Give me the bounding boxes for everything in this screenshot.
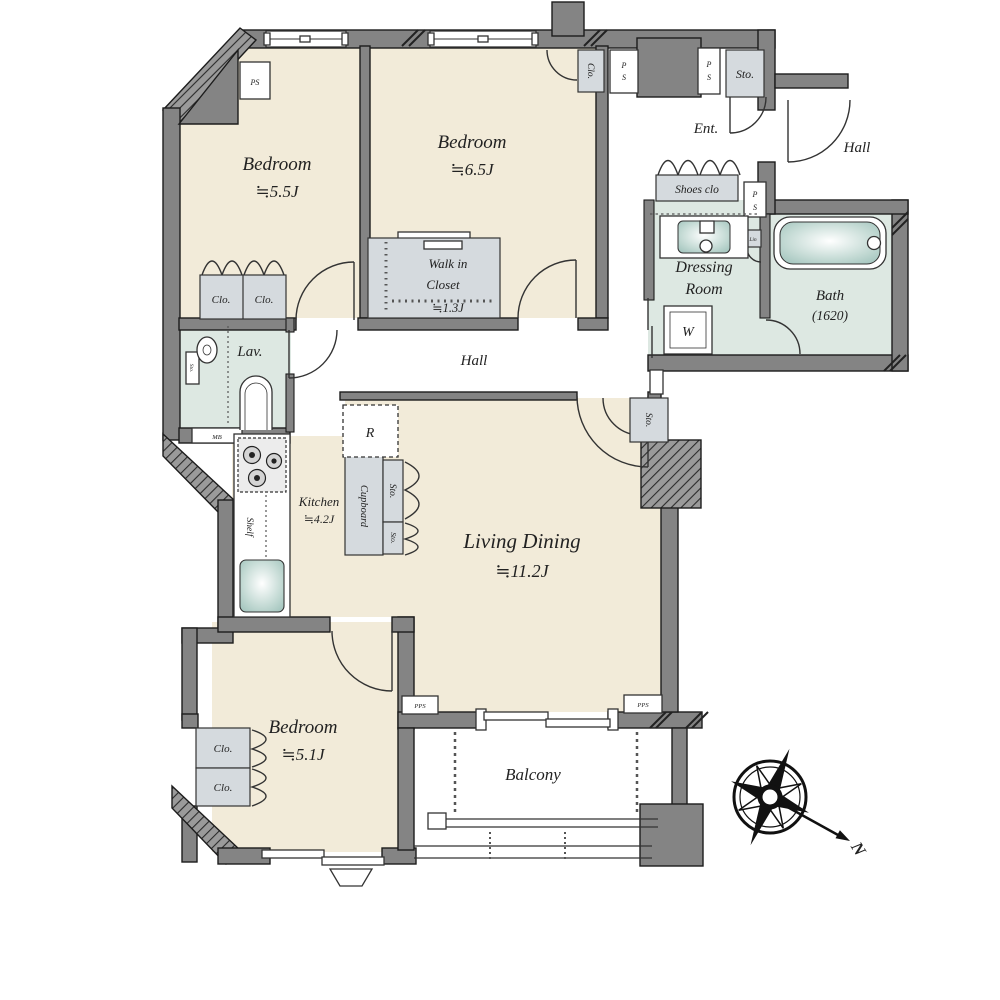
walk-in-closet-area: ≒1.3J	[432, 301, 465, 315]
living-dining-area: ≒11.2J	[495, 561, 549, 581]
closet-c-lower-label: Clo.	[214, 782, 233, 794]
cupboard-label: Cupboard	[358, 485, 369, 528]
closet-c-upper-label: Clo.	[214, 743, 233, 755]
meter-box-label: MB	[211, 434, 221, 441]
kitchen-name: Kitchen	[298, 494, 339, 509]
storage-niche-lavatory-label: Sto.	[188, 364, 194, 372]
kitchen-sink-icon	[240, 560, 284, 612]
bedroom-b-name: Bedroom	[438, 132, 507, 153]
hall-exterior-name: Hall	[843, 140, 871, 156]
window-bedroom-b	[428, 31, 538, 47]
window-bedroom-a	[264, 31, 348, 47]
ps-top-center-p: P	[621, 61, 627, 70]
shoes-closet-label: Shoes clo	[675, 184, 719, 196]
bath-name: Bath	[816, 288, 844, 304]
bedroom-c-name: Bedroom	[269, 717, 338, 738]
floor-plan-drawing: N Bedroom ≒5.5J Bedroom ≒6.5J Bedroom ≒5…	[0, 0, 1000, 1000]
storage-entry-label: Sto.	[736, 67, 754, 81]
floor-plan-page: N Bedroom ≒5.5J Bedroom ≒6.5J Bedroom ≒5…	[0, 0, 1000, 1000]
storage-kitchen-label: Sto.	[387, 484, 397, 499]
toilet-icon	[240, 376, 272, 430]
washer-label: W	[682, 325, 695, 340]
compass-north-label: N	[847, 838, 871, 860]
ps-box-top-right	[698, 48, 720, 94]
bath-size: (1620)	[812, 308, 848, 323]
balcony-details	[414, 732, 658, 860]
lavatory-name: Lav.	[236, 344, 262, 360]
pps-left-label: PPS	[413, 703, 426, 710]
linen-label: Lin	[748, 237, 757, 243]
ps-entrance-p: P	[752, 190, 758, 199]
dressing-room-name1: Dressing	[674, 259, 732, 276]
closet-b-label: Clo.	[585, 63, 595, 79]
walk-in-closet-name2: Closet	[426, 277, 460, 292]
stove-icon	[238, 438, 286, 492]
ps-top-right-p: P	[706, 60, 712, 69]
ps-top-center-s: S	[622, 73, 626, 82]
ps-top-right-s: S	[707, 73, 711, 82]
living-dining-name: Living Dining	[462, 529, 580, 553]
compass-rose-icon: N	[712, 733, 871, 861]
door-entrance	[788, 100, 850, 162]
sliding-door-living-balcony	[476, 709, 618, 730]
window-bedroom-c	[262, 850, 384, 886]
entrance-name: Ent.	[693, 121, 719, 137]
closet-a-left-label: Clo.	[212, 294, 231, 306]
pps-right-label: PPS	[636, 702, 649, 709]
dressing-room-name2: Room	[684, 281, 722, 298]
bathtub-icon	[774, 217, 886, 269]
bedroom-a-area: ≒5.5J	[255, 182, 299, 201]
walk-in-closet-name1: Walk in	[429, 256, 468, 271]
vanity-sink-icon	[650, 214, 758, 258]
bedroom-b-area: ≒6.5J	[450, 160, 494, 179]
shelf-label: Shelf	[244, 518, 255, 538]
storage-hall-label: Sto.	[643, 413, 653, 428]
closet-a-right-label: Clo.	[255, 294, 274, 306]
kitchen-area: ≒4.2J	[304, 512, 335, 526]
bedroom-a-name: Bedroom	[243, 154, 312, 175]
small-service-box-hall	[650, 370, 663, 394]
door-lavatory	[289, 330, 337, 378]
balcony-name: Balcony	[505, 765, 561, 784]
ps-entrance-s: S	[753, 203, 757, 212]
bedroom-c-area: ≒5.1J	[281, 745, 325, 764]
storage-kitchen-small-label: Sto.	[389, 532, 398, 544]
ps-box-top-center	[610, 50, 638, 93]
refrigerator-label: R	[365, 426, 375, 441]
bifold-doors-shoes-closet	[658, 161, 740, 176]
ps-bedroom-a-label: PS	[250, 78, 260, 87]
hall-interior-name: Hall	[460, 353, 488, 369]
